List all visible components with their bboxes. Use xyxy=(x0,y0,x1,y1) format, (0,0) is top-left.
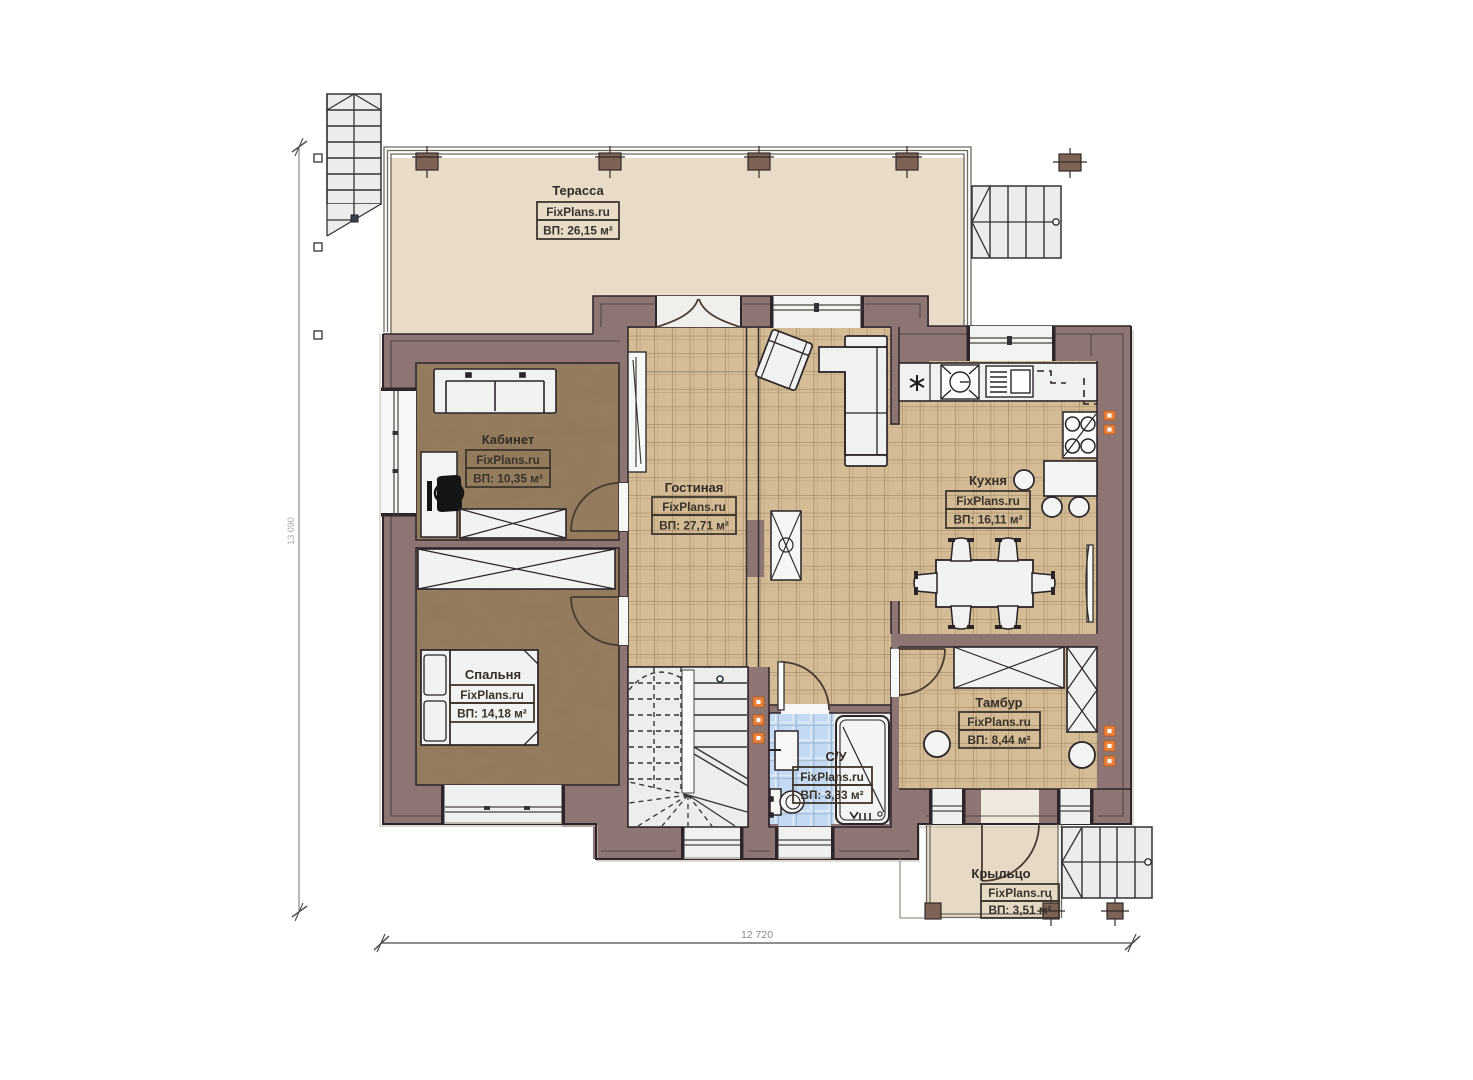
svg-text:FixPlans.ru: FixPlans.ru xyxy=(460,688,524,702)
svg-text:Крыльцо: Крыльцо xyxy=(971,866,1030,881)
svg-text:Терасса: Терасса xyxy=(552,183,604,198)
svg-text:FixPlans.ru: FixPlans.ru xyxy=(956,494,1020,508)
svg-text:FixPlans.ru: FixPlans.ru xyxy=(662,500,726,514)
svg-text:12 720: 12 720 xyxy=(741,929,773,941)
svg-text:Кухня: Кухня xyxy=(969,473,1007,488)
svg-text:13 090: 13 090 xyxy=(286,517,296,545)
svg-text:ВП: 10,35 м²: ВП: 10,35 м² xyxy=(473,472,543,486)
svg-text:ВП: 3,83 м²: ВП: 3,83 м² xyxy=(800,788,863,802)
svg-text:ВП: 14,18 м²: ВП: 14,18 м² xyxy=(457,707,527,721)
svg-text:ВП: 3,51 м²: ВП: 3,51 м² xyxy=(988,903,1051,917)
svg-text:ВП: 26,15 м²: ВП: 26,15 м² xyxy=(543,224,613,238)
svg-text:ВП: 27,71 м²: ВП: 27,71 м² xyxy=(659,519,729,533)
svg-text:Тамбур: Тамбур xyxy=(975,695,1022,710)
svg-text:Спальня: Спальня xyxy=(465,667,521,682)
svg-text:Гостиная: Гостиная xyxy=(665,480,724,495)
svg-text:С/У: С/У xyxy=(825,749,847,764)
svg-text:FixPlans.ru: FixPlans.ru xyxy=(988,886,1052,900)
svg-text:ВП: 8,44 м²: ВП: 8,44 м² xyxy=(967,733,1030,747)
svg-text:Кабинет: Кабинет xyxy=(482,432,535,447)
svg-text:FixPlans.ru: FixPlans.ru xyxy=(967,715,1031,729)
svg-text:FixPlans.ru: FixPlans.ru xyxy=(476,453,540,467)
svg-text:ВП: 16,11 м²: ВП: 16,11 м² xyxy=(953,513,1022,527)
svg-text:FixPlans.ru: FixPlans.ru xyxy=(800,770,864,784)
svg-text:FixPlans.ru: FixPlans.ru xyxy=(546,205,610,219)
